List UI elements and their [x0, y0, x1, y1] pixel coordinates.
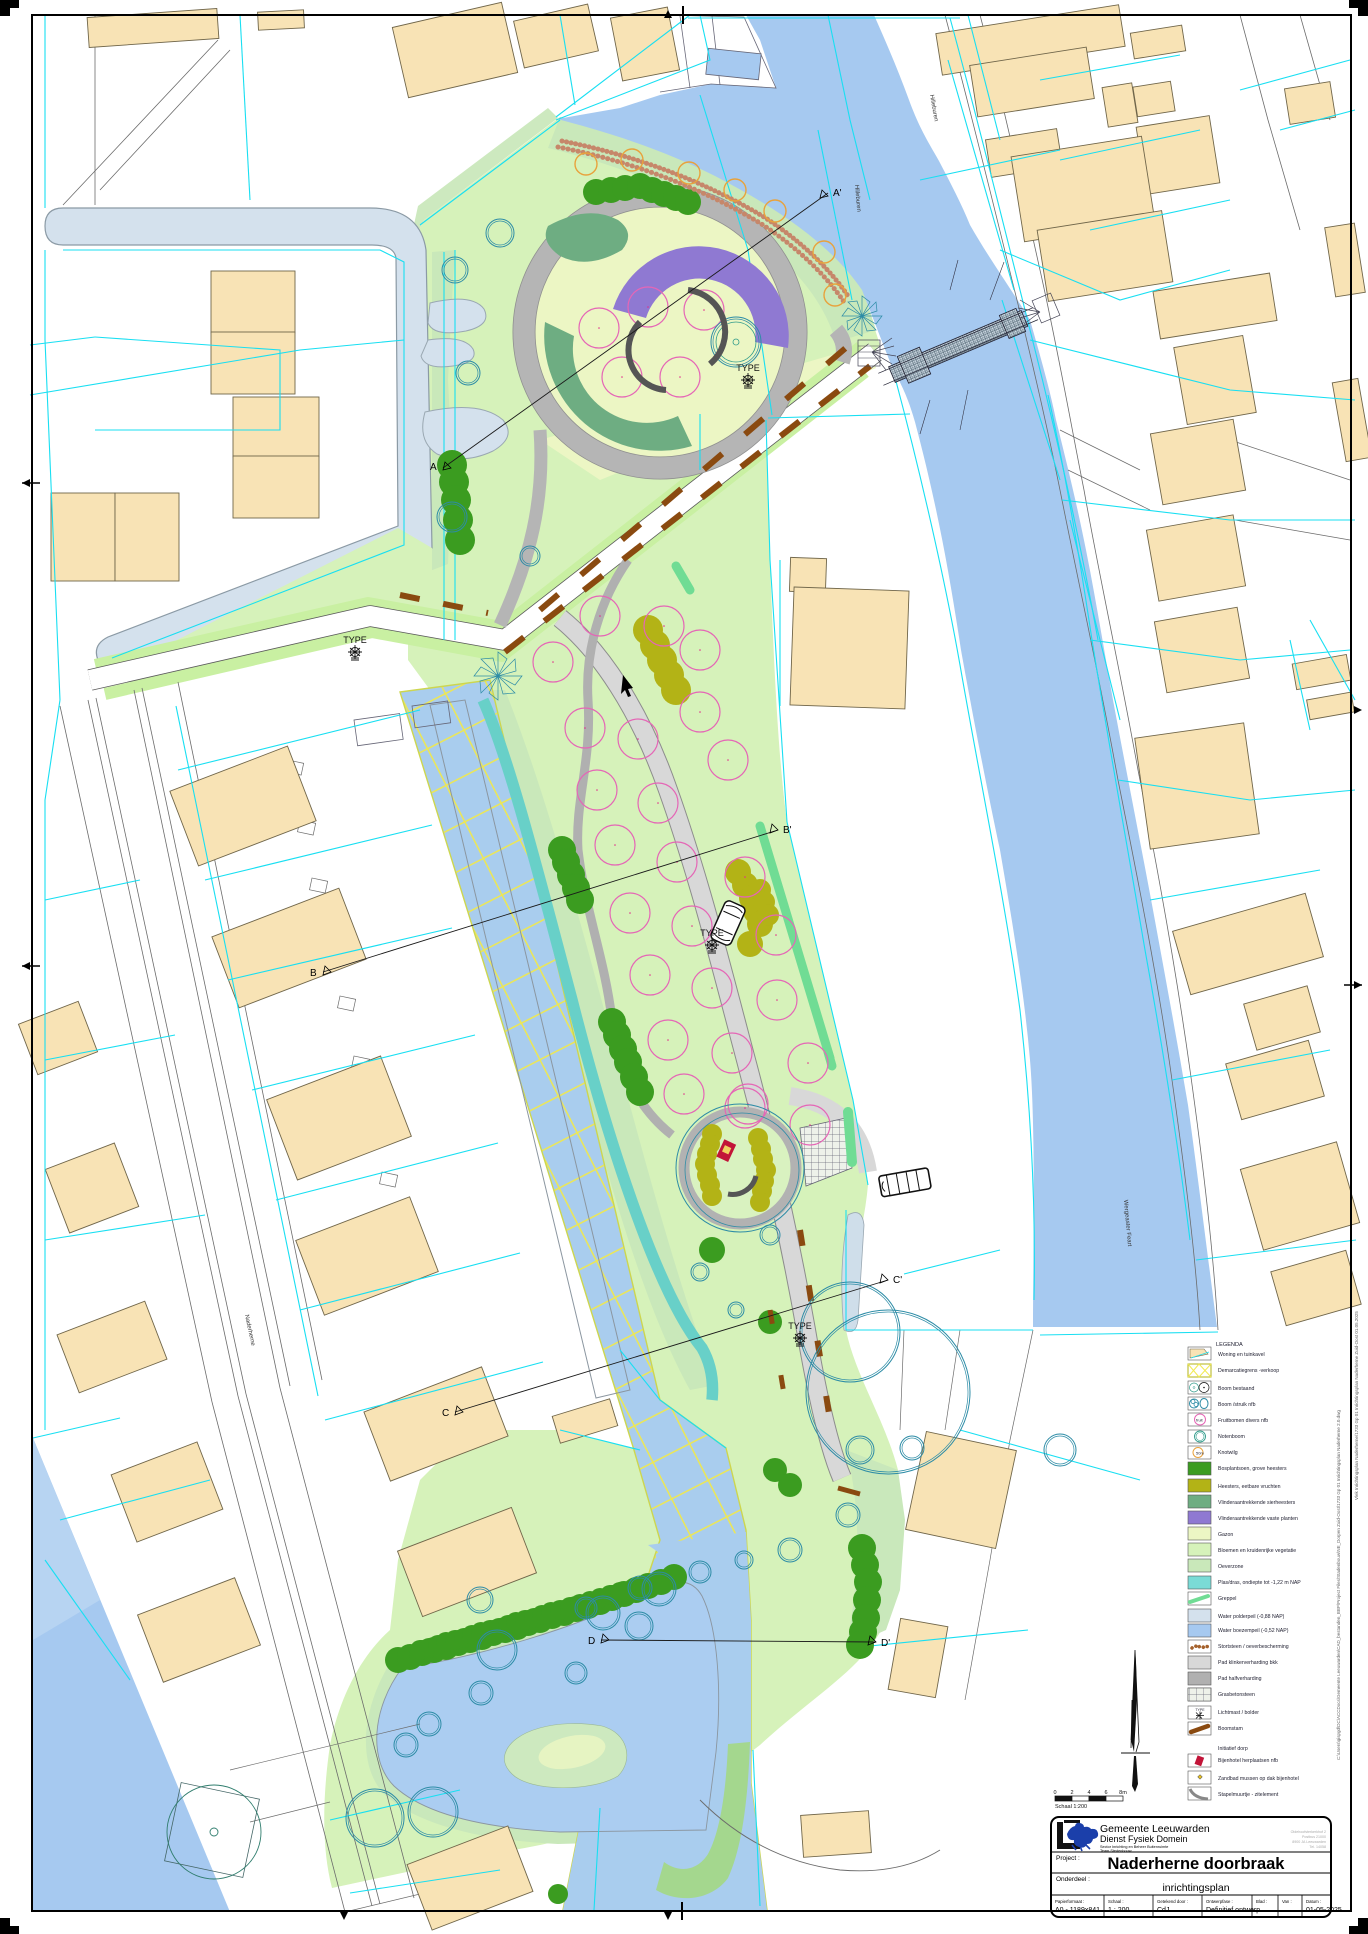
- svg-text:Woning en tuinkavel: Woning en tuinkavel: [1218, 1352, 1265, 1358]
- svg-text:Zandbad mussen op dak bijenhot: Zandbad mussen op dak bijenhotel: [1218, 1776, 1299, 1782]
- svg-text:Schaal :: Schaal :: [1108, 1899, 1124, 1904]
- svg-text:Bloemen en kruidenrijke vegeta: Bloemen en kruidenrijke vegetatie: [1218, 1548, 1296, 1554]
- svg-text:8m: 8m: [1119, 1790, 1127, 1796]
- svg-text:fruit: fruit: [1196, 1418, 1204, 1423]
- svg-text:Boomstam: Boomstam: [1218, 1726, 1243, 1732]
- svg-text:Boom bestaand: Boom bestaand: [1218, 1386, 1254, 1392]
- svg-text:Demarcatiegrens -verkoop: Demarcatiegrens -verkoop: [1218, 1368, 1279, 1374]
- svg-text:6: 6: [1104, 1790, 1107, 1796]
- svg-text:Greppel: Greppel: [1218, 1596, 1236, 1602]
- svg-text:inrichtingsplan: inrichtingsplan: [1162, 1882, 1229, 1894]
- svg-text:Oldehoofsterkerkhof 2: Oldehoofsterkerkhof 2: [1291, 1830, 1326, 1834]
- svg-text:Schaal 1:200: Schaal 1:200: [1055, 1804, 1087, 1810]
- svg-text:2: 2: [1070, 1790, 1073, 1796]
- svg-text:4: 4: [1087, 1790, 1090, 1796]
- svg-text:Vlinderaantrekkende sierheeste: Vlinderaantrekkende sierheesters: [1218, 1500, 1296, 1506]
- svg-text:C:\Users\gispgd\DC\ACCDocs\Gem: C:\Users\gispgd\DC\ACCDocs\Gemeente Leeu…: [1336, 1410, 1341, 1760]
- svg-text:B: B: [310, 968, 317, 979]
- svg-text:Grasbetonsteen: Grasbetonsteen: [1218, 1692, 1255, 1698]
- svg-text:Bosplantsoen, grove heesters: Bosplantsoen, grove heesters: [1218, 1466, 1287, 1472]
- svg-text:Knotwilg: Knotwilg: [1218, 1450, 1238, 1456]
- svg-text:Team Stedenbouw: Team Stedenbouw: [1100, 1849, 1132, 1853]
- svg-text:Pad klinkerverharding bkk: Pad klinkerverharding bkk: [1218, 1660, 1278, 1666]
- svg-text:Stortsteen / oeverbescherming: Stortsteen / oeverbescherming: [1218, 1644, 1289, 1650]
- svg-text:D: D: [588, 1636, 595, 1647]
- svg-text:Ontwerpfase :: Ontwerpfase :: [1206, 1899, 1233, 1904]
- svg-text:Vlinderaantrekkende vaste plan: Vlinderaantrekkende vaste planten: [1218, 1516, 1298, 1522]
- svg-text:Pad halfverharding: Pad halfverharding: [1218, 1676, 1262, 1682]
- svg-text:Vlek Inrichtingsplan Naderhern: Vlek Inrichtingsplan Naderherne/1733 Gp …: [1354, 1311, 1359, 1500]
- svg-text:Datum :: Datum :: [1306, 1899, 1321, 1904]
- svg-text:Van :: Van :: [1282, 1899, 1292, 1904]
- svg-text:Boom /struik nfb: Boom /struik nfb: [1218, 1402, 1256, 1408]
- svg-text:Fruitbomen divers nfb: Fruitbomen divers nfb: [1218, 1418, 1268, 1424]
- svg-text:Onderdeel :: Onderdeel :: [1056, 1876, 1090, 1883]
- svg-text:C: C: [442, 1408, 449, 1419]
- svg-text:Stapelmuurtje - zitelement: Stapelmuurtje - zitelement: [1218, 1792, 1279, 1798]
- svg-text:Papierformaat :: Papierformaat :: [1055, 1899, 1084, 1904]
- svg-text:Oeverzone: Oeverzone: [1218, 1564, 1243, 1570]
- svg-text:Getekend door :: Getekend door :: [1157, 1899, 1188, 1904]
- svg-text:A': A': [833, 188, 842, 199]
- svg-text:Project :: Project :: [1056, 1855, 1080, 1862]
- svg-text:Heesters, eetbare vruchten: Heesters, eetbare vruchten: [1218, 1484, 1281, 1490]
- svg-text:Naderherne doorbraak: Naderherne doorbraak: [1108, 1855, 1286, 1873]
- svg-text:Initiatief dorp: Initiatief dorp: [1218, 1746, 1248, 1752]
- svg-text:C': C': [893, 1275, 902, 1286]
- svg-text:Water boezempeil (-0,52 NAP): Water boezempeil (-0,52 NAP): [1218, 1628, 1289, 1634]
- svg-text:Notenboom: Notenboom: [1218, 1434, 1245, 1440]
- svg-text:TYPE: TYPE: [788, 1321, 812, 1331]
- svg-text:Dienst Fysiek Domein: Dienst Fysiek Domein: [1100, 1834, 1188, 1844]
- svg-text:Bijenhotel herplaatsen nfb: Bijenhotel herplaatsen nfb: [1218, 1758, 1278, 1764]
- svg-text:Gazon: Gazon: [1218, 1532, 1233, 1538]
- svg-text:Lichtmast / bolder: Lichtmast / bolder: [1218, 1710, 1259, 1716]
- svg-text:TYPE: TYPE: [736, 363, 760, 373]
- svg-text:TYPE: TYPE: [700, 928, 724, 938]
- svg-text:LEGENDA: LEGENDA: [1216, 1342, 1243, 1348]
- svg-text:8900 JA Leeuwarden: 8900 JA Leeuwarden: [1292, 1840, 1326, 1844]
- svg-text:Tel. 14058: Tel. 14058: [1309, 1845, 1326, 1849]
- svg-text:Plas/dras, ondiepte tot -1,22: Plas/dras, ondiepte tot -1,22 m NAP: [1218, 1580, 1301, 1586]
- svg-text:Blad :: Blad :: [1256, 1899, 1267, 1904]
- svg-text:A: A: [430, 462, 437, 473]
- svg-text:TYPE: TYPE: [343, 635, 367, 645]
- svg-text:D': D': [881, 1638, 890, 1649]
- svg-text:TYPE: TYPE: [1195, 1708, 1205, 1712]
- svg-text:50m: 50m: [1196, 1451, 1204, 1456]
- svg-text:B': B': [783, 825, 792, 836]
- svg-text:0: 0: [1053, 1790, 1056, 1796]
- svg-text:Water polderpeil (-0,88 NAP): Water polderpeil (-0,88 NAP): [1218, 1614, 1285, 1620]
- svg-text:Postbus 21000: Postbus 21000: [1302, 1835, 1326, 1839]
